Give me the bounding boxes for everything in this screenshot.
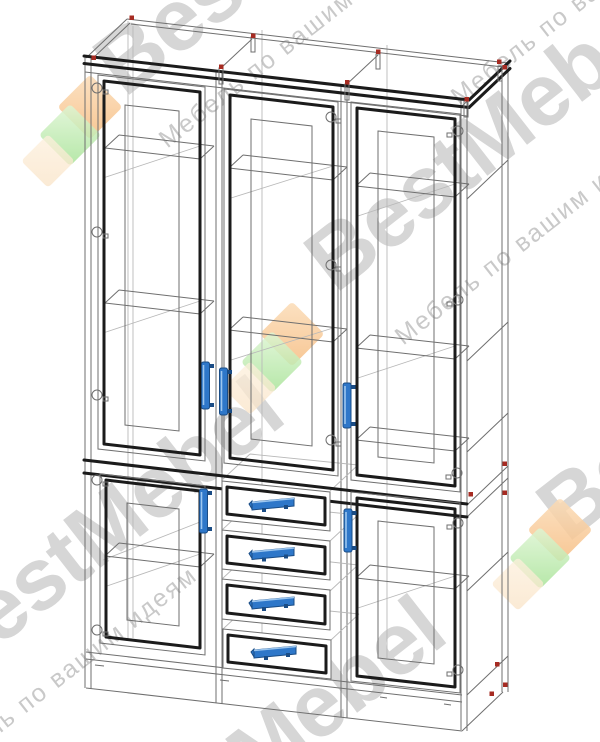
screenshot-canvas: BestMebel BestMebel BestMebel BestMebel … bbox=[0, 0, 600, 742]
door-upper-left bbox=[98, 75, 205, 461]
door-lower-left bbox=[100, 474, 205, 655]
wardrobe-technical-drawing bbox=[0, 0, 600, 742]
cornice bbox=[84, 56, 510, 108]
door-upper-middle bbox=[224, 89, 338, 476]
door-handle-lower-right bbox=[344, 509, 357, 552]
door-upper-right bbox=[351, 102, 460, 492]
door-handle-lower-left bbox=[200, 489, 213, 533]
door-handle-upper-left bbox=[202, 362, 215, 409]
door-handle-upper-right bbox=[343, 383, 356, 428]
